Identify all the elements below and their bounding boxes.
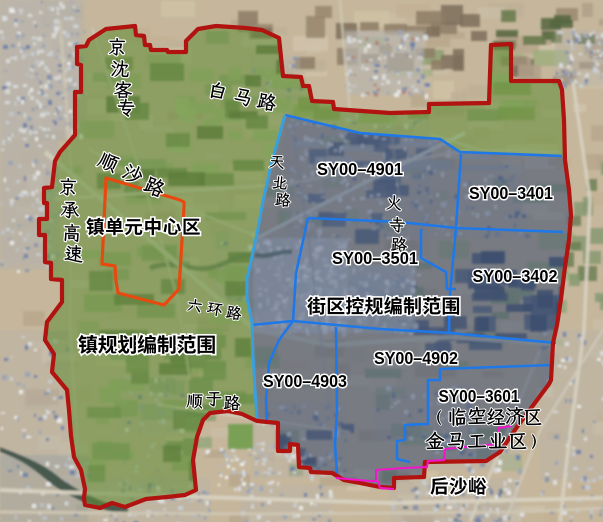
svg-text:SY00–3601: SY00–3601 xyxy=(439,386,520,406)
svg-text:SY00–4902: SY00–4902 xyxy=(374,348,458,368)
svg-text:SY00–3401: SY00–3401 xyxy=(469,183,553,203)
svg-text:SY00–3402: SY00–3402 xyxy=(473,266,558,286)
svg-text:SY00–4901: SY00–4901 xyxy=(317,159,403,179)
svg-text:SY00–3501: SY00–3501 xyxy=(332,248,418,268)
svg-text:SY00–4903: SY00–4903 xyxy=(263,371,347,391)
